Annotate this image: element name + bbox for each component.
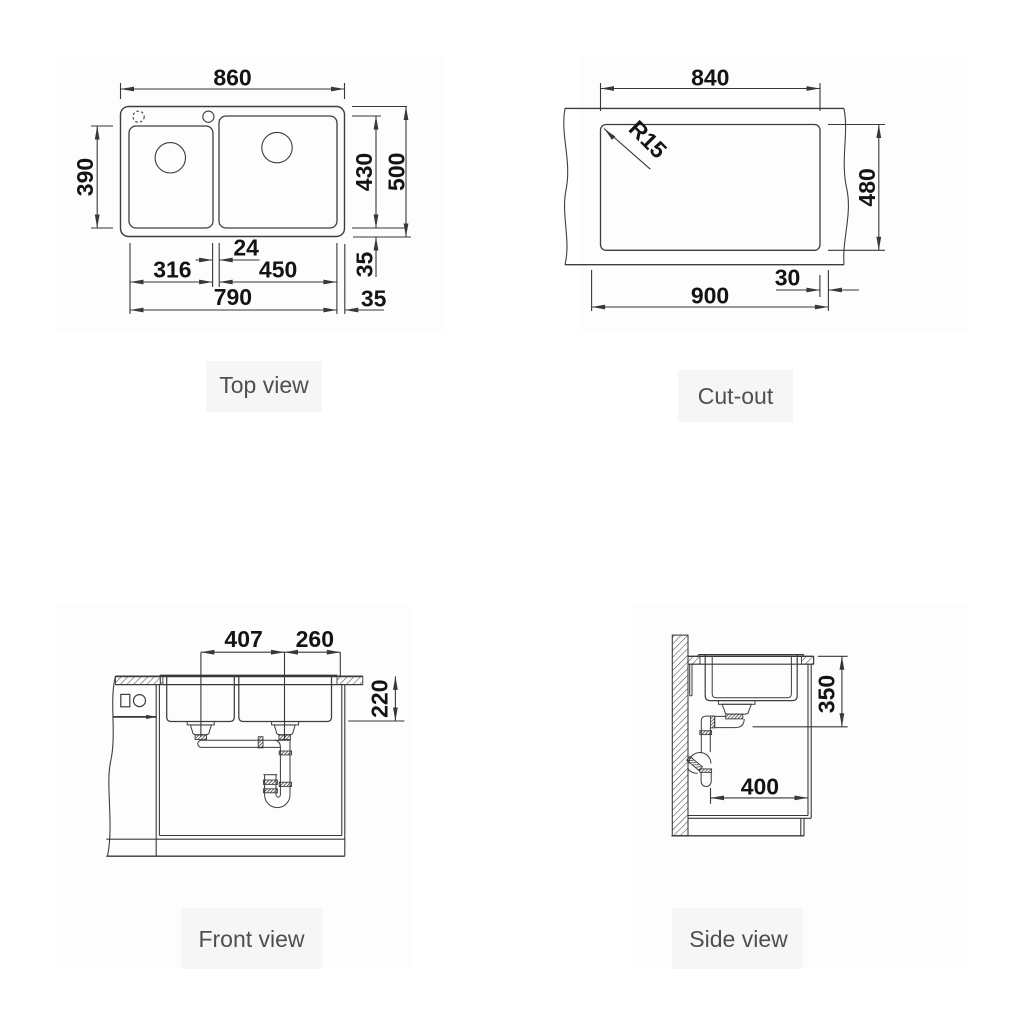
svg-text:Cut-out: Cut-out <box>698 383 774 409</box>
svg-text:35: 35 <box>361 286 387 312</box>
svg-text:860: 860 <box>213 65 251 91</box>
svg-text:390: 390 <box>72 158 98 196</box>
svg-text:Front view: Front view <box>198 926 304 952</box>
svg-text:400: 400 <box>741 774 779 800</box>
svg-text:Top view: Top view <box>219 372 309 398</box>
svg-text:30: 30 <box>775 265 801 291</box>
svg-text:24: 24 <box>233 235 259 261</box>
svg-text:407: 407 <box>224 626 262 652</box>
svg-text:500: 500 <box>384 153 410 191</box>
svg-text:480: 480 <box>854 168 880 206</box>
svg-text:Side view: Side view <box>689 926 788 952</box>
svg-text:790: 790 <box>214 284 252 310</box>
svg-text:316: 316 <box>153 257 191 283</box>
svg-text:260: 260 <box>296 626 334 652</box>
svg-text:840: 840 <box>691 65 729 91</box>
svg-text:35: 35 <box>352 252 378 278</box>
svg-text:900: 900 <box>691 283 729 309</box>
svg-text:450: 450 <box>259 257 297 283</box>
svg-text:220: 220 <box>367 680 393 718</box>
svg-text:430: 430 <box>351 153 377 191</box>
svg-text:350: 350 <box>814 675 840 713</box>
